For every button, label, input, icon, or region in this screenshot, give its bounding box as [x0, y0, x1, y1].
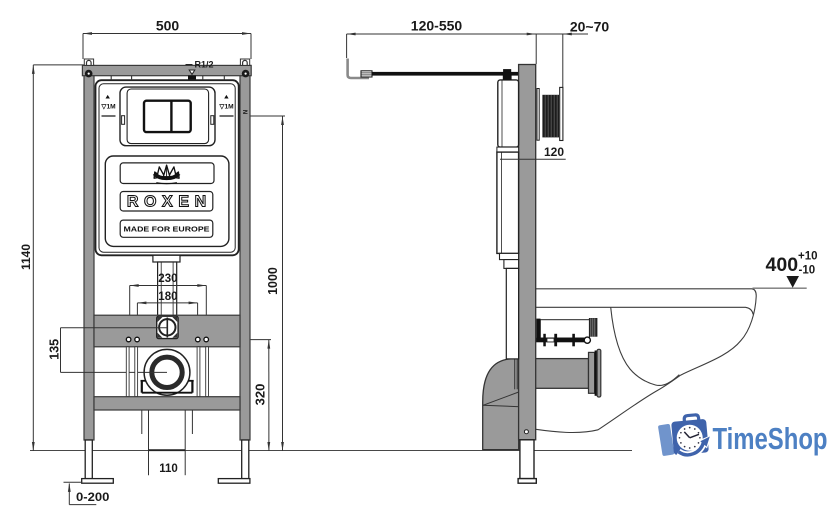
svg-text:230: 230 [158, 273, 177, 285]
svg-text:+10: +10 [798, 250, 818, 262]
svg-text:110: 110 [159, 463, 178, 475]
svg-text:500: 500 [156, 17, 180, 33]
svg-text:20~70: 20~70 [570, 18, 610, 34]
svg-text:180: 180 [158, 291, 177, 303]
svg-text:TimeShop: TimeShop [713, 422, 828, 456]
svg-text:1140: 1140 [19, 244, 33, 270]
svg-text:-10: -10 [799, 264, 816, 276]
svg-text:R1/2: R1/2 [195, 60, 214, 70]
svg-text:120-550: 120-550 [411, 18, 463, 34]
svg-text:1000: 1000 [266, 267, 280, 295]
svg-text:MADE FOR EUROPE: MADE FOR EUROPE [124, 224, 210, 233]
svg-text:ROXEN: ROXEN [127, 193, 212, 210]
svg-text:▽1M: ▽1M [100, 104, 116, 111]
svg-text:320: 320 [252, 384, 267, 406]
svg-text:400: 400 [766, 254, 799, 276]
svg-text:135: 135 [47, 339, 61, 360]
svg-text:0-200: 0-200 [76, 490, 110, 504]
svg-text:120: 120 [544, 145, 564, 159]
svg-text:N: N [244, 110, 250, 114]
svg-text:▽1M: ▽1M [218, 104, 234, 111]
